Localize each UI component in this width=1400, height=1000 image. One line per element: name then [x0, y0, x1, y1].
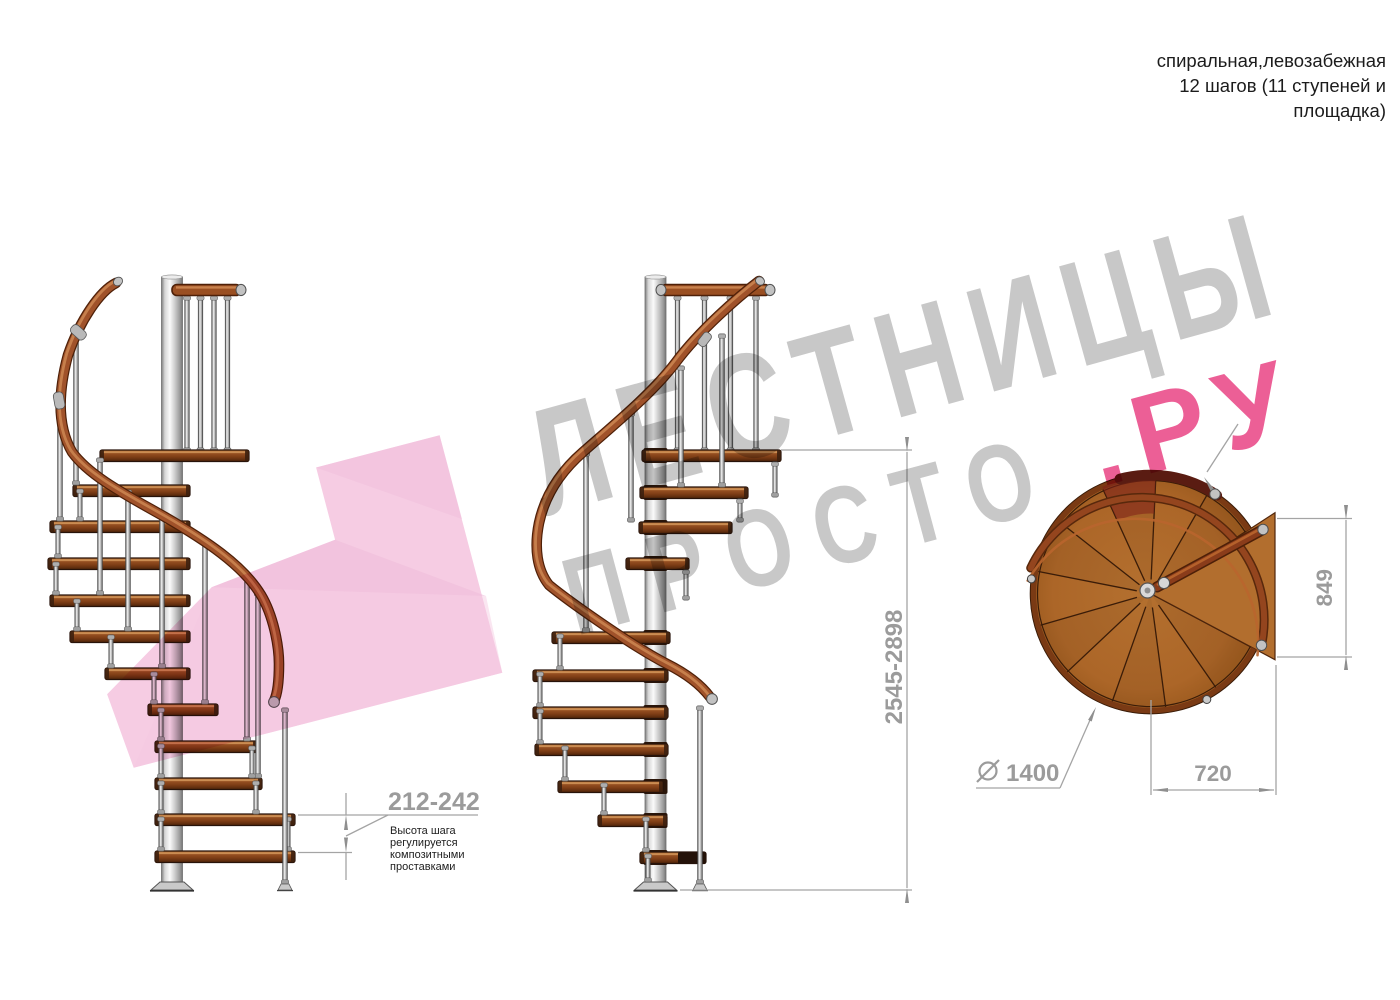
- svg-text:849: 849: [1312, 569, 1337, 607]
- svg-text:12 шагов (11 ступеней и: 12 шагов (11 ступеней и: [1179, 75, 1386, 96]
- svg-text:Высота шагарегулируется композ: Высота шагарегулируется композитнымипрос…: [390, 825, 464, 873]
- svg-text:1400: 1400: [1006, 760, 1059, 787]
- svg-text:площадка): площадка): [1293, 100, 1386, 121]
- svg-text:спиральная,левозабежная: спиральная,левозабежная: [1157, 50, 1386, 71]
- svg-text:2545-2898: 2545-2898: [881, 610, 908, 725]
- svg-text:212-242: 212-242: [388, 788, 480, 816]
- svg-text:720: 720: [1194, 761, 1232, 786]
